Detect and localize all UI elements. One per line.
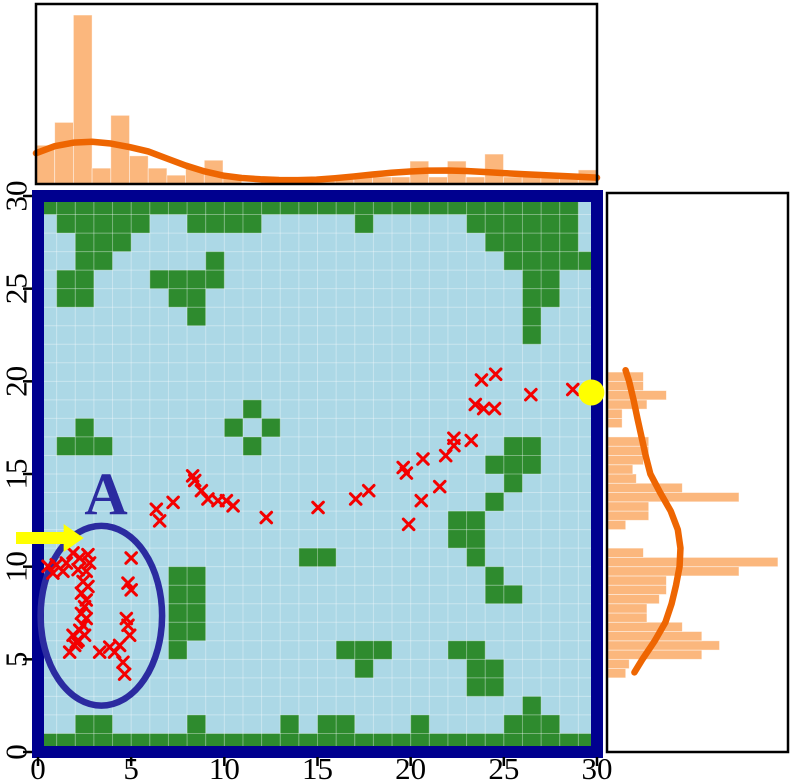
obstacle-cell (467, 641, 486, 660)
obstacle-cell (485, 493, 504, 512)
obstacle-cell (299, 548, 318, 567)
obstacle-cell (94, 252, 113, 271)
right-hist-bar (608, 548, 643, 557)
obstacle-cell (75, 270, 94, 289)
right-hist-bar (608, 511, 649, 520)
right-hist-bar (608, 576, 666, 585)
obstacle-cell (243, 215, 262, 234)
right-hist-bar (608, 502, 649, 511)
obstacle-cell (522, 307, 541, 326)
top-histogram (36, 4, 597, 184)
obstacle-cell (318, 715, 337, 734)
obstacle-cell (75, 437, 94, 456)
obstacle-cell (355, 641, 374, 660)
y-tick-label: 30 (0, 181, 34, 212)
obstacle-cell (522, 715, 541, 734)
obstacle-cell (504, 437, 523, 456)
obstacle-cell (187, 622, 206, 641)
x-tick-label: 15 (302, 751, 333, 783)
right-hist-bar (608, 669, 626, 678)
obstacle-cell (541, 715, 560, 734)
obstacle-cell (504, 252, 523, 271)
obstacle-cell (187, 289, 206, 308)
top-hist-bar (167, 175, 186, 184)
x-tick-label: 20 (395, 751, 426, 783)
obstacle-cell (522, 233, 541, 252)
obstacle-cell (560, 252, 579, 271)
obstacle-cell (57, 289, 76, 308)
obstacle-cell (57, 437, 76, 456)
obstacle-cell (75, 715, 94, 734)
obstacle-cell (485, 678, 504, 697)
y-tick-label: 25 (0, 273, 34, 304)
obstacle-cell (541, 270, 560, 289)
obstacle-cell (94, 437, 113, 456)
obstacle-cell (94, 215, 113, 234)
obstacle-cell (448, 530, 467, 549)
obstacle-cell (522, 696, 541, 715)
obstacle-cell (467, 659, 486, 678)
obstacle-cell (541, 233, 560, 252)
obstacle-cell (187, 715, 206, 734)
obstacle-cell (168, 604, 187, 623)
obstacle-cell (75, 289, 94, 308)
obstacle-cell (75, 418, 94, 437)
obstacle-cell (224, 418, 243, 437)
right-hist-bar (608, 455, 643, 464)
obstacle-cell (467, 678, 486, 697)
y-tick-label: 20 (0, 366, 34, 397)
obstacle-cell (467, 548, 486, 567)
right-hist-bar (608, 622, 682, 631)
obstacle-cell (485, 585, 504, 604)
right-hist-bar (608, 381, 643, 390)
x-tick-label: 30 (582, 751, 613, 783)
right-hist-bar (608, 418, 622, 427)
obstacle-cell (541, 252, 560, 271)
right-hist-bar (608, 465, 633, 474)
top-hist-bar (148, 168, 167, 184)
obstacle-cell (541, 289, 560, 308)
obstacle-cell (560, 215, 579, 234)
top-hist-bar (55, 122, 74, 184)
obstacle-cell (280, 715, 299, 734)
right-hist-bar (608, 391, 666, 400)
right-hist-bar (608, 493, 739, 502)
obstacle-cell (150, 270, 169, 289)
obstacle-cell (168, 585, 187, 604)
obstacle-cell (57, 215, 76, 234)
obstacle-cell (187, 604, 206, 623)
top-hist-bar (73, 15, 92, 184)
obstacle-cell (485, 567, 504, 586)
y-tick-label: 10 (0, 551, 34, 582)
right-histogram (607, 193, 788, 752)
obstacle-cell (75, 233, 94, 252)
obstacle-cell (504, 215, 523, 234)
obstacle-cell (467, 530, 486, 549)
y-tick-label: 5 (0, 652, 34, 668)
obstacle-cell (113, 215, 132, 234)
obstacle-cell (243, 437, 262, 456)
x-tick-label: 5 (123, 751, 139, 783)
obstacle-cell (224, 215, 243, 234)
goal-point-marker (578, 379, 604, 405)
right-hist-bar (608, 474, 636, 483)
obstacle-cell (206, 270, 225, 289)
right-hist-bar (608, 604, 647, 613)
obstacle-cell (336, 641, 355, 660)
obstacle-cell (485, 455, 504, 474)
right-hist-bar (608, 409, 622, 418)
obstacle-cell (187, 585, 206, 604)
obstacle-cell (355, 215, 374, 234)
obstacle-cell (187, 270, 206, 289)
obstacle-cell (560, 233, 579, 252)
obstacle-cell (504, 474, 523, 493)
obstacle-cell (467, 215, 486, 234)
obstacle-cell (485, 215, 504, 234)
obstacle-cell (411, 715, 430, 734)
right-hist-bar (608, 613, 647, 622)
obstacle-cell (504, 715, 523, 734)
obstacle-cell (57, 270, 76, 289)
obstacle-cell (522, 326, 541, 345)
obstacle-cell (504, 585, 523, 604)
obstacle-cell (168, 289, 187, 308)
obstacle-cell (504, 455, 523, 474)
right-hist-bar (608, 400, 647, 409)
right-hist-bar (608, 557, 778, 566)
obstacle-cell (541, 215, 560, 234)
obstacle-cell (187, 215, 206, 234)
obstacle-cell (113, 233, 132, 252)
obstacle-cell (522, 289, 541, 308)
obstacle-cell (485, 659, 504, 678)
obstacle-cell (448, 641, 467, 660)
obstacle-cell (206, 215, 225, 234)
obstacle-cell (243, 400, 262, 419)
figure-canvas: 051015202530051015202530 A (0, 0, 792, 783)
obstacle-cell (168, 567, 187, 586)
obstacle-cell (522, 215, 541, 234)
obstacle-cell (168, 270, 187, 289)
right-hist-bar (608, 641, 720, 650)
region-a-label: A (84, 461, 127, 527)
obstacle-cell (75, 215, 94, 234)
obstacle-cell (485, 233, 504, 252)
x-tick-label: 25 (488, 751, 519, 783)
occupancy-grid-plot: 051015202530051015202530 A (0, 181, 613, 783)
obstacle-cell (448, 511, 467, 530)
right-hist-bar (608, 659, 629, 668)
obstacle-cell (187, 307, 206, 326)
top-hist-bar (130, 156, 149, 184)
y-tick-label: 15 (0, 459, 34, 490)
obstacle-cell (355, 659, 374, 678)
right-hist-bar (608, 520, 626, 529)
obstacle-cell (206, 252, 225, 271)
obstacle-cell (168, 622, 187, 641)
obstacle-cell (94, 233, 113, 252)
obstacle-cell (522, 437, 541, 456)
x-tick-label: 10 (209, 751, 240, 783)
obstacle-cell (75, 252, 94, 271)
obstacle-cell (187, 567, 206, 586)
right-hist-bar (608, 585, 666, 594)
obstacle-cell (467, 511, 486, 530)
jointplot-figure: 051015202530051015202530 A (0, 0, 792, 783)
obstacle-cell (504, 233, 523, 252)
right-hist-bar (608, 594, 659, 603)
obstacle-cell (522, 270, 541, 289)
obstacle-cell (373, 641, 392, 660)
obstacle-cell (522, 455, 541, 474)
obstacle-cell (522, 252, 541, 271)
right-hist-bar (608, 650, 702, 659)
obstacle-cell (336, 715, 355, 734)
right-hist-bar (608, 483, 682, 492)
obstacle-cell (168, 641, 187, 660)
y-tick-label: 0 (0, 744, 34, 760)
obstacle-cell (318, 548, 337, 567)
top-hist-bar (92, 168, 111, 184)
obstacle-cell (262, 418, 281, 437)
right-hist-bar (608, 567, 739, 576)
obstacle-cell (131, 215, 150, 234)
obstacle-cell (94, 715, 113, 734)
